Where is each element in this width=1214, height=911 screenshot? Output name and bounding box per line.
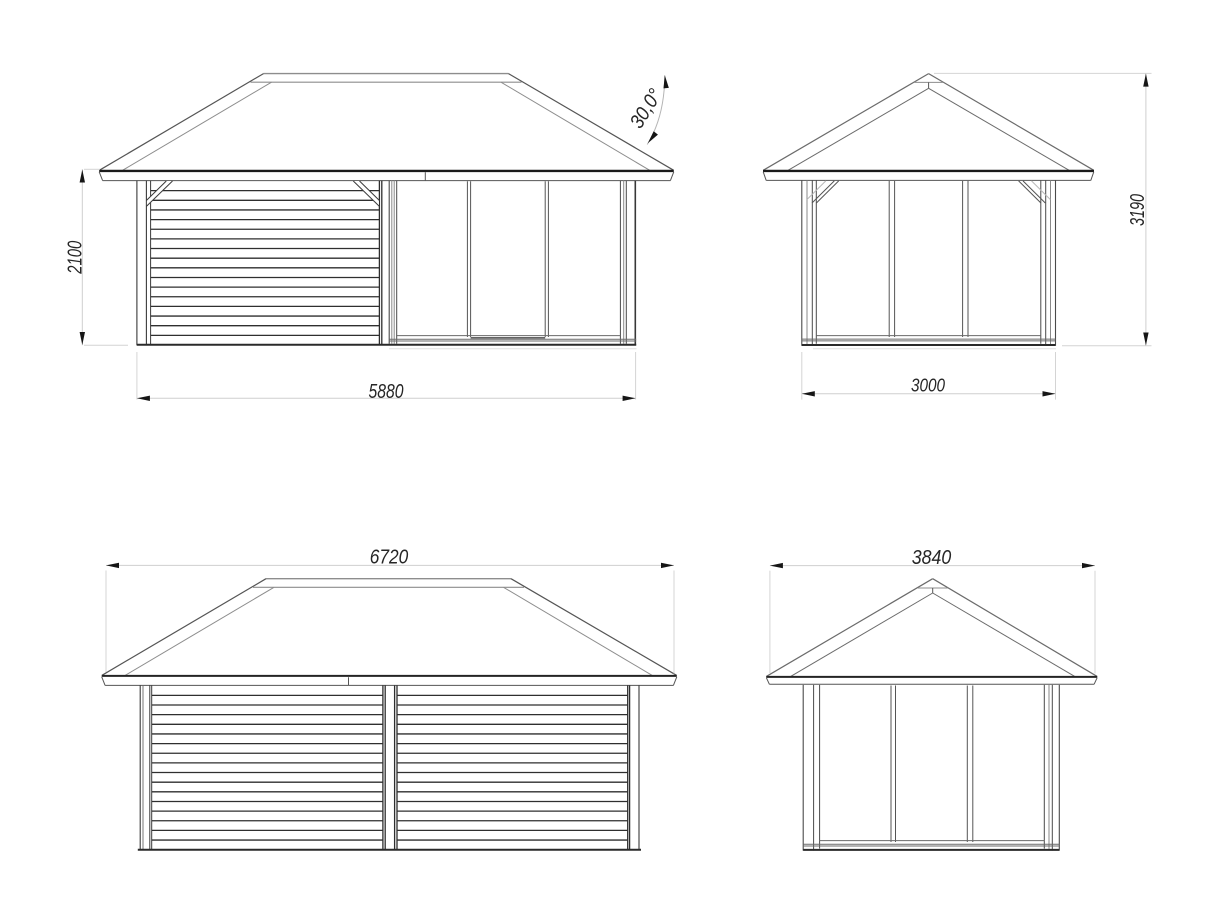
svg-text:6720: 6720 <box>370 547 409 569</box>
svg-text:5880: 5880 <box>369 381 404 403</box>
svg-text:3000: 3000 <box>911 376 945 396</box>
svg-text:2100: 2100 <box>64 241 86 275</box>
svg-text:3190: 3190 <box>1127 194 1149 226</box>
svg-text:3840: 3840 <box>912 547 952 569</box>
